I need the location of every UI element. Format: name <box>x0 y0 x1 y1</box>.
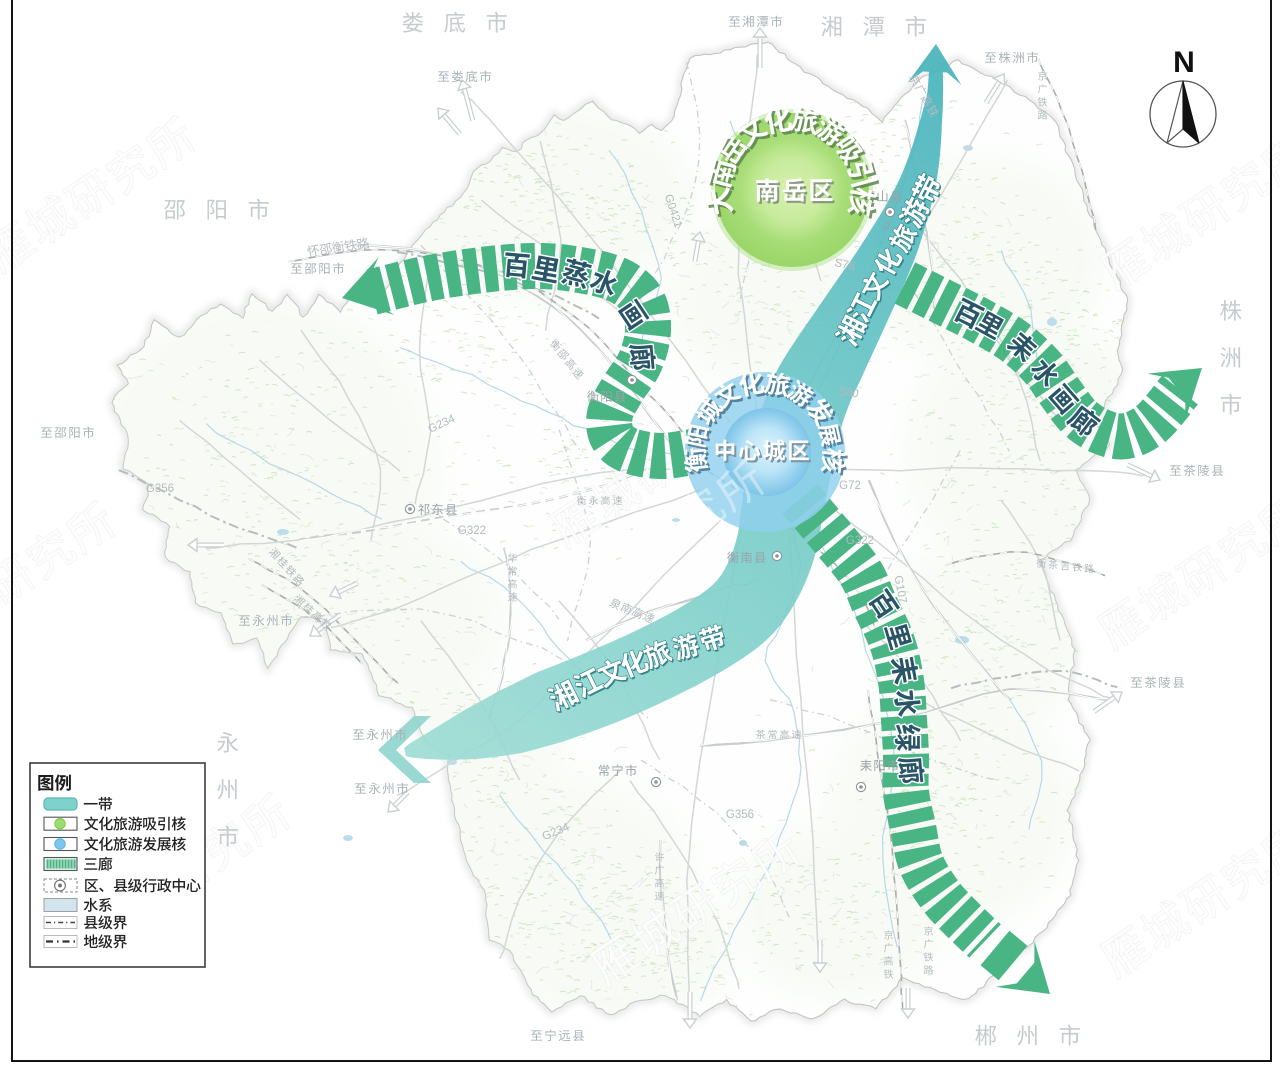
svg-text:G356: G356 <box>146 483 174 495</box>
svg-text:G322: G322 <box>458 525 486 537</box>
svg-text:G356: G356 <box>726 809 754 821</box>
svg-text:N: N <box>1173 46 1195 79</box>
svg-text:G322: G322 <box>846 535 874 547</box>
svg-text:G72: G72 <box>839 480 861 492</box>
